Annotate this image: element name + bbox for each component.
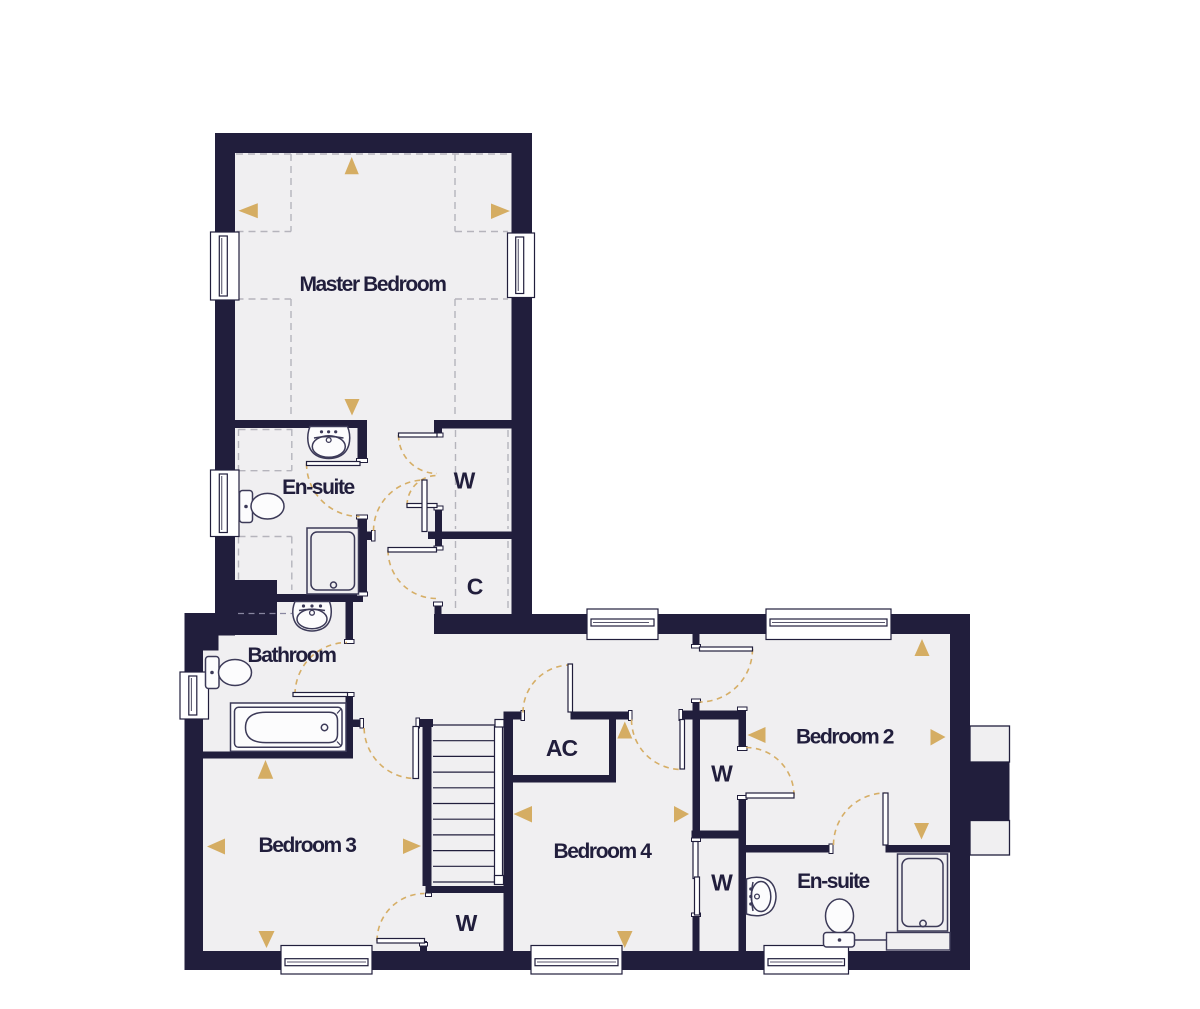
svg-text:En-suite: En-suite bbox=[797, 870, 869, 893]
svg-text:W: W bbox=[711, 870, 733, 896]
svg-text:Master Bedroom: Master Bedroom bbox=[299, 273, 446, 296]
svg-text:Bedroom 3: Bedroom 3 bbox=[258, 834, 356, 857]
svg-text:C: C bbox=[467, 574, 483, 600]
svg-text:W: W bbox=[711, 761, 733, 787]
svg-text:Bedroom 4: Bedroom 4 bbox=[553, 840, 652, 863]
svg-text:W: W bbox=[456, 910, 478, 936]
svg-text:Bathroom: Bathroom bbox=[248, 644, 337, 667]
svg-text:Bedroom 2: Bedroom 2 bbox=[796, 726, 894, 749]
svg-text:W: W bbox=[454, 468, 476, 494]
svg-text:AC: AC bbox=[546, 735, 578, 761]
svg-text:En-suite: En-suite bbox=[282, 476, 354, 499]
